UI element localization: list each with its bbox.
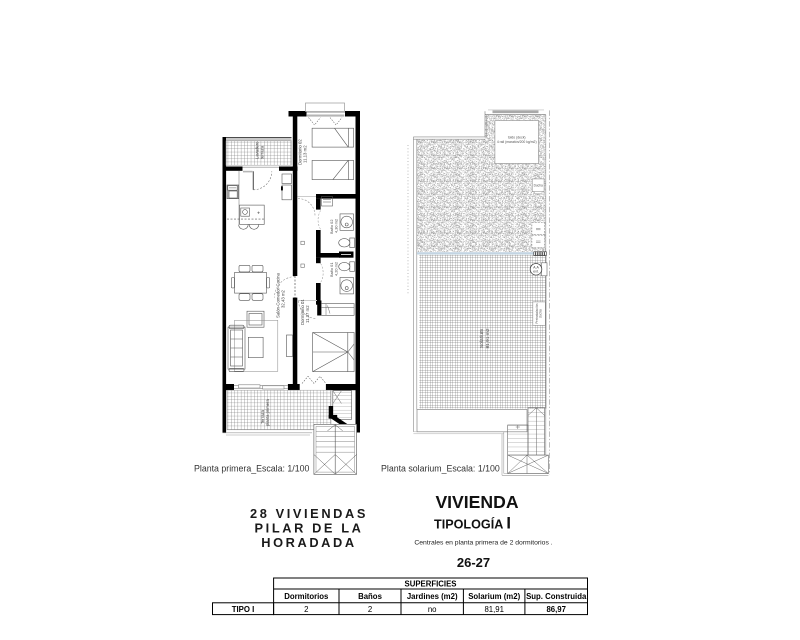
svg-text:TIPO I: TIPO I — [232, 605, 255, 614]
svg-text:Baños: Baños — [358, 592, 382, 601]
svg-text:Planta primera_Escala: 1/100: Planta primera_Escala: 1/100 — [194, 464, 310, 474]
svg-text:toldo (deck): toldo (deck) — [508, 136, 526, 140]
svg-text:Jardines (m2): Jardines (m2) — [407, 592, 458, 601]
svg-text:ducha: ducha — [539, 309, 543, 318]
svg-text:2: 2 — [368, 605, 372, 614]
svg-text:ext.: ext. — [533, 269, 539, 273]
svg-text:Dormitorios: Dormitorios — [284, 592, 329, 601]
svg-text:32,43 m2: 32,43 m2 — [281, 289, 286, 308]
svg-text:11,37 m2: 11,37 m2 — [305, 305, 310, 323]
svg-text:4 rail (maratón/200 kg/m2): 4 rail (maratón/200 kg/m2) — [497, 140, 537, 144]
svg-text:81,91: 81,91 — [484, 605, 504, 614]
svg-text:Planta solarium_Escala: 1/100: Planta solarium_Escala: 1/100 — [381, 464, 500, 474]
svg-text:VIVIENDA: VIVIENDA — [435, 492, 518, 512]
svg-text:Solarium (m2): Solarium (m2) — [468, 592, 520, 601]
svg-text:Sup. Construida: Sup. Construida — [526, 592, 587, 601]
svg-text:28 VIVIENDAS: 28 VIVIENDAS — [250, 506, 368, 521]
svg-text:11,13 m2: 11,13 m2 — [303, 145, 308, 163]
svg-text:81,91 m2: 81,91 m2 — [485, 328, 491, 348]
svg-text:planta primera: planta primera — [265, 399, 270, 426]
svg-text:TIPOLOGÍA I: TIPOLOGÍA I — [434, 515, 511, 533]
svg-text:PILAR DE LA: PILAR DE LA — [255, 521, 364, 536]
svg-text:Solarium: Solarium — [479, 329, 485, 348]
svg-text:Centrales en planta primera de: Centrales en planta primera de 2 dormito… — [414, 540, 552, 547]
svg-text:no: no — [428, 605, 437, 614]
svg-text:Ducha: Ducha — [534, 183, 543, 187]
svg-text:SUPERFICIES: SUPERFICIES — [405, 580, 457, 589]
svg-text:4,30 m2: 4,30 m2 — [333, 219, 338, 233]
svg-text:HORADADA: HORADADA — [261, 535, 356, 550]
svg-text:terraza: terraza — [260, 145, 265, 159]
svg-text:4,20 m2: 4,20 m2 — [333, 262, 338, 276]
svg-text:2: 2 — [304, 605, 308, 614]
svg-text:86,97: 86,97 — [546, 605, 566, 614]
svg-text:26-27: 26-27 — [457, 555, 490, 570]
